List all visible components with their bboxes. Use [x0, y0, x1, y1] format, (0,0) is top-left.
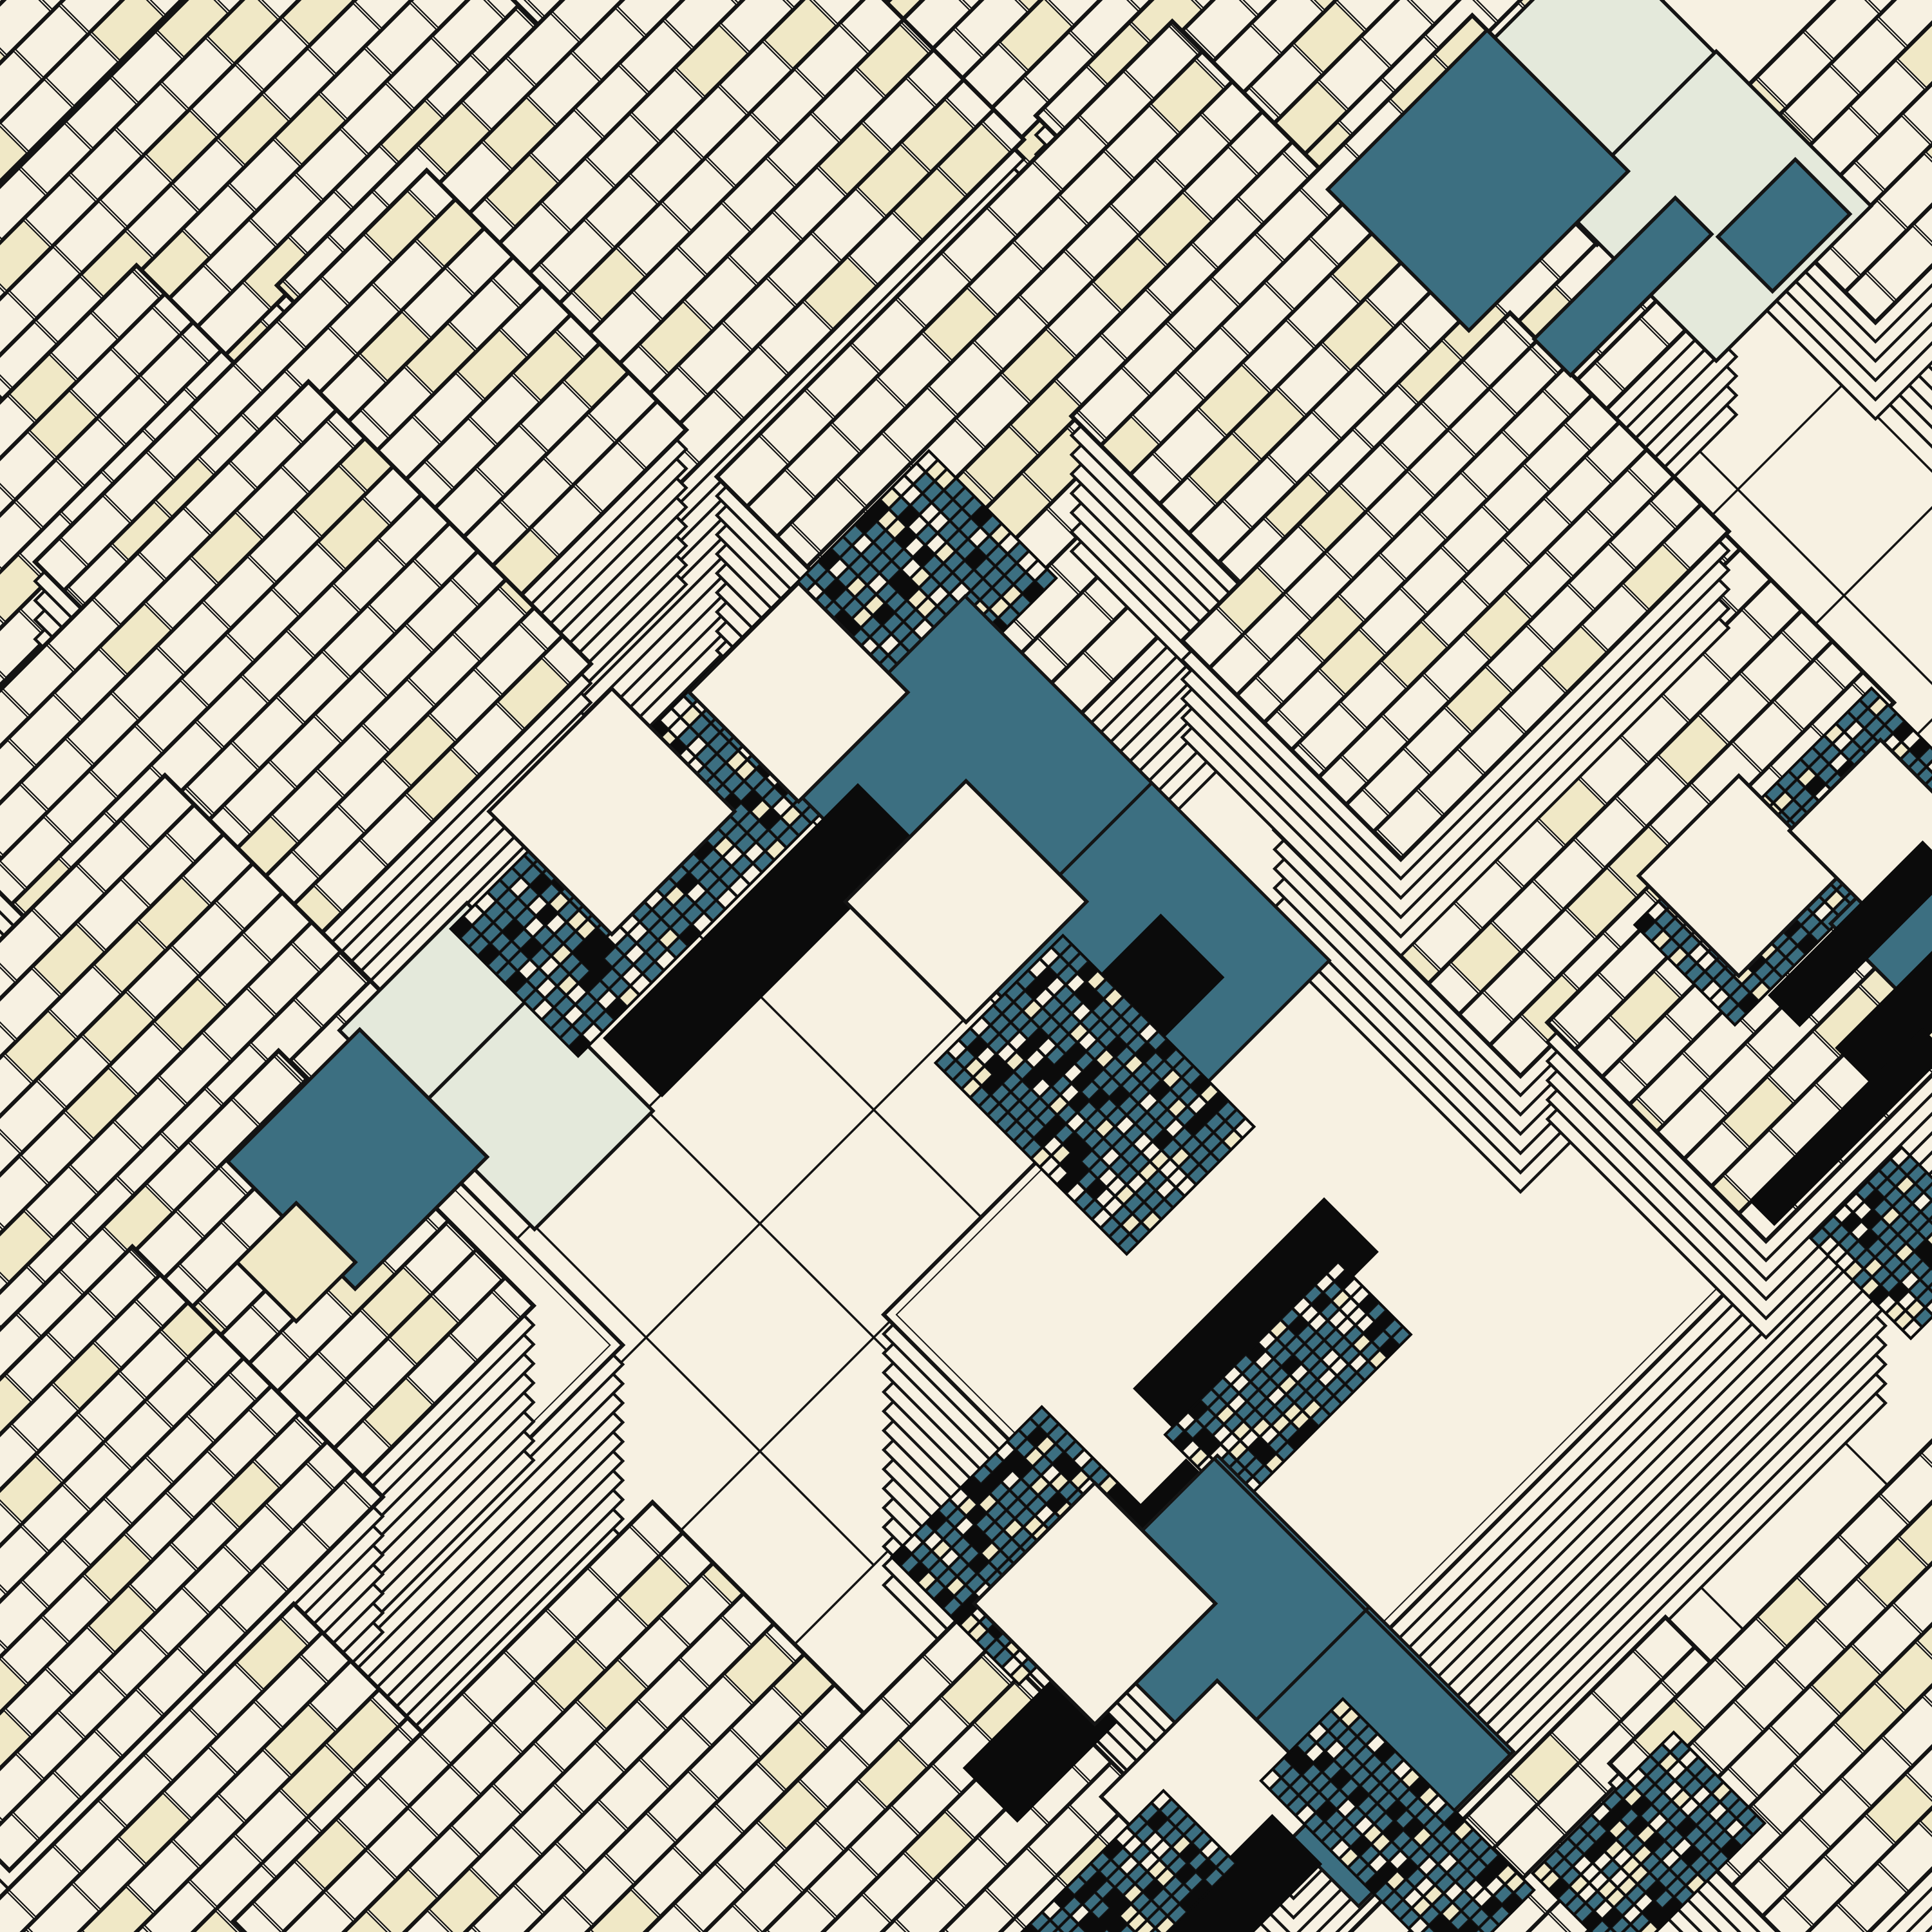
generative-artwork	[0, 0, 1932, 1932]
artwork-canvas	[0, 0, 1932, 1932]
